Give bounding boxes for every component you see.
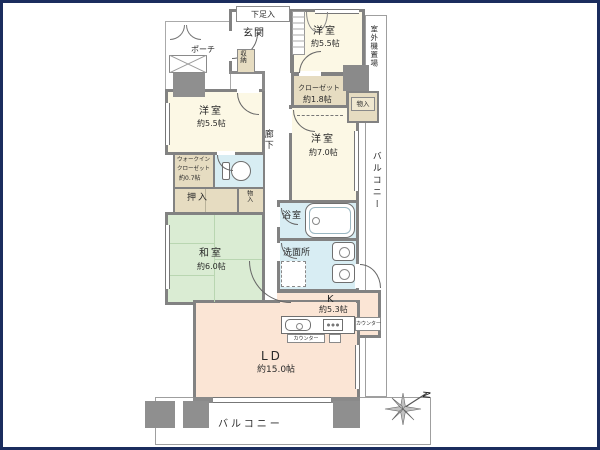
bathroom-label: 浴室: [282, 211, 302, 223]
washroom-label: 洗面所: [283, 248, 310, 260]
pillar-bottom-left: [183, 401, 209, 428]
shoe-box-label: 下足入: [237, 7, 289, 22]
bathtub-icon: [305, 203, 355, 238]
bedroom-left-size: 約5.5帖: [197, 119, 226, 129]
oshiire-label: 押入: [187, 193, 209, 205]
tatami-line-h2: [168, 275, 214, 276]
pillar-bottom-left-outer: [145, 401, 175, 428]
tatami-line-h1: [168, 243, 214, 244]
meter-box-icon: [169, 55, 207, 73]
living-name: LD: [261, 349, 283, 365]
floor-plan: 室外機置場 バルコニー バルコニー ポーチ 玄関 下足入 収納 洋室 約5.5帖…: [0, 0, 600, 450]
counter1-label: カウンター: [288, 335, 324, 343]
wall-corner-block: [343, 65, 369, 91]
balcony-right-label: バルコニー: [369, 151, 381, 211]
storage-small-label: 物入: [245, 190, 253, 202]
wic-line2: クローゼット: [177, 166, 210, 173]
closet-18-name: クローゼット: [298, 84, 340, 93]
bedroom-top-name: 洋室: [313, 25, 337, 38]
vanity-sink-icon: [332, 242, 355, 261]
bedroom-mid-size: 約7.0帖: [309, 148, 338, 158]
toilet-bowl-icon: [231, 161, 251, 181]
window-washitsu: [165, 225, 170, 289]
window-ld-bottom: [213, 397, 331, 403]
porch-label: ポーチ: [191, 45, 215, 55]
storage-right-label: 物入: [352, 98, 374, 111]
wic-line1: ウォークイン: [177, 157, 210, 164]
window-bedroom-left: [165, 103, 170, 145]
bathroom-door-gap: [276, 207, 280, 227]
shoe-box-label-box: 下足入: [236, 6, 290, 22]
kitchen-sink-icon: [285, 319, 311, 331]
closet-18-size: 約1.8帖: [303, 95, 332, 105]
counter2-label: カウンター: [356, 318, 380, 331]
balcony-right: [365, 102, 387, 397]
kitchen-stove-icon: [323, 319, 343, 331]
bedroom-left-name: 洋室: [199, 105, 223, 118]
compass-icon: N: [381, 385, 433, 431]
laundry-sink-icon: [332, 264, 355, 283]
outdoor-unit-label: 室外機置場: [369, 25, 379, 68]
balcony-bottom-label: バルコニー: [218, 418, 283, 431]
counter2-box: カウンター: [355, 317, 381, 331]
genkan-storage-box: 収納: [237, 49, 255, 73]
washitsu-name: 和室: [199, 247, 223, 260]
kitchen-size: 約5.3帖: [319, 305, 348, 315]
counter1-box: カウンター: [287, 334, 325, 343]
counter-pass-box: [329, 334, 341, 343]
compass-n-label: N: [420, 390, 432, 399]
washroom-door-gap: [276, 243, 280, 261]
bedroom-top-size: 約5.5帖: [311, 39, 340, 49]
pillar-bottom-right: [333, 401, 360, 428]
entrance-label: 玄関: [243, 27, 265, 40]
bedroom-mid-door-gap: [288, 109, 292, 133]
bathtub-faucet-icon: [312, 217, 320, 225]
washitsu-size: 約6.0帖: [197, 262, 226, 272]
wic-line3: 約0.7帖: [179, 175, 201, 183]
wall-hall-west: [262, 71, 265, 91]
living-size: 約15.0帖: [257, 365, 295, 377]
storage-right-box: 物入: [351, 97, 375, 111]
genkan-storage-label: 収納: [238, 50, 246, 63]
window-living-right: [355, 345, 360, 389]
bedroom-mid-name: 洋室: [311, 133, 335, 146]
window-bedroom-mid: [354, 131, 359, 191]
hallway-label: 廊下: [261, 129, 273, 151]
closet-hatch-icon: [292, 11, 305, 55]
wall-block-left: [173, 73, 205, 97]
